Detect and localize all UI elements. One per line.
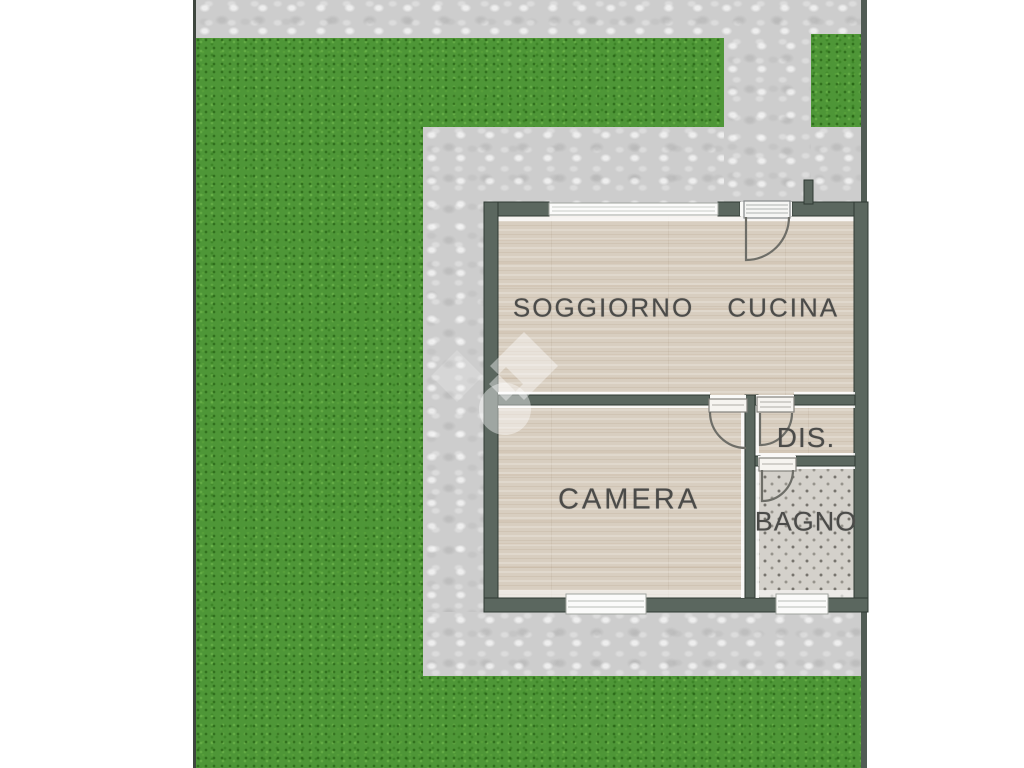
bagno-door-icon [758,456,796,501]
room-label-disimpegno: DIS. [777,422,835,454]
floorplan-linework [0,0,1024,768]
room-label-camera: CAMERA [558,484,700,517]
floor-plan-image: SOGGIORNO CUCINA CAMERA DIS. BAGNO [0,0,1024,768]
entrance-door-icon [740,201,792,260]
room-label-soggiorno-cucina: SOGGIORNO CUCINA [513,293,839,324]
bagno-window-icon [776,594,828,614]
room-label-bagno: BAGNO [755,507,858,538]
top-window-icon [549,203,718,215]
camera-window-icon [566,594,646,614]
